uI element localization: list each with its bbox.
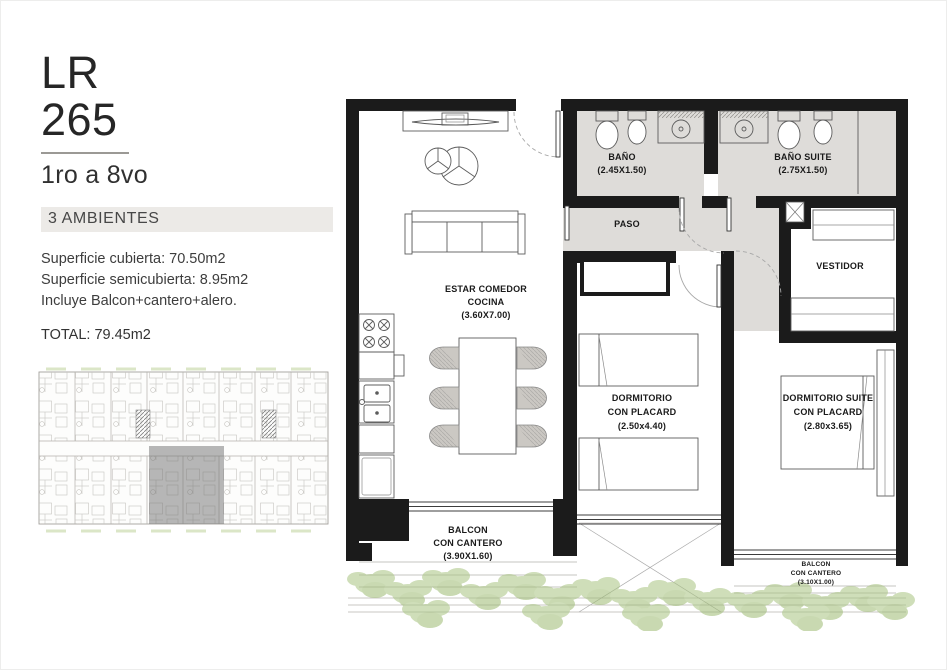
vestidor-label: VESTIDOR — [816, 261, 864, 271]
key-plan — [36, 364, 332, 538]
balcony-plants — [347, 568, 915, 631]
entry-door — [514, 111, 560, 157]
svg-text:(2.80x3.65): (2.80x3.65) — [804, 421, 852, 431]
svg-text:DORMITORIO: DORMITORIO — [612, 393, 672, 403]
spec-includes: Incluye Balcon+cantero+alero. — [41, 291, 333, 312]
bed-2 — [579, 438, 698, 490]
stove — [359, 314, 394, 352]
dining-set — [430, 338, 547, 454]
dormitorio-label: DORMITORIO CON PLACARD (2.50x4.40) — [608, 393, 677, 431]
bano-door — [680, 198, 684, 231]
bidet — [628, 120, 646, 144]
living-furniture — [359, 111, 547, 498]
key-plan-graphic — [39, 369, 328, 531]
spec-semicovered: Superficie semicubierta: 8.95m2 — [41, 270, 333, 291]
svg-text:BALCON: BALCON — [801, 561, 830, 568]
paso-label: PASO — [614, 219, 640, 229]
living-balcony-door — [409, 502, 553, 511]
svg-text:BAÑO: BAÑO — [608, 152, 635, 162]
key-plan-unit-highlight — [149, 446, 224, 524]
svg-text:CON PLACARD: CON PLACARD — [794, 407, 863, 417]
svg-text:COCINA: COCINA — [468, 297, 505, 307]
project-code-line2: 265 — [41, 96, 333, 143]
svg-text:(3.60X7.00): (3.60X7.00) — [461, 310, 510, 320]
svg-text:CON CANTERO: CON CANTERO — [791, 570, 842, 577]
bidet — [814, 120, 832, 144]
svg-text:CON PLACARD: CON PLACARD — [608, 407, 677, 417]
floor-plan: ESTAR COMEDOR COCINA (3.60X7.00) BAÑO (2… — [346, 86, 947, 631]
svg-text:CON CANTERO: CON CANTERO — [433, 538, 502, 548]
ambientes-label: 3 AMBIENTES — [48, 210, 160, 227]
divider-rule — [41, 152, 129, 154]
page-background: LR 265 1ro a 8vo 3 AMBIENTES Superficie … — [0, 0, 947, 670]
dining-table — [459, 338, 516, 454]
living-label: ESTAR COMEDOR COCINA (3.60X7.00) — [445, 284, 527, 320]
dormitorio-suite-label: DORMITORIO SUITE CON PLACARD (2.80x3.65) — [783, 393, 874, 431]
project-code: LR 265 — [41, 49, 333, 143]
shaft — [786, 202, 804, 222]
kitchen-counter — [359, 314, 404, 498]
svg-text:PASO: PASO — [614, 219, 640, 229]
side-tables — [425, 147, 478, 185]
closet — [582, 260, 668, 294]
bed-1 — [579, 334, 698, 386]
balcon-left-label: BALCON CON CANTERO (3.90X1.60) — [433, 525, 502, 561]
svg-text:(2.50x4.40): (2.50x4.40) — [618, 421, 666, 431]
svg-text:ESTAR COMEDOR: ESTAR COMEDOR — [445, 284, 527, 294]
bedroom-door — [679, 265, 721, 307]
svg-text:(3.10X1.00): (3.10X1.00) — [798, 579, 834, 586]
info-panel: LR 265 1ro a 8vo 3 AMBIENTES Superficie … — [41, 49, 333, 538]
floor-range: 1ro a 8vo — [41, 161, 333, 190]
suite-window — [734, 550, 896, 559]
balcon-right-label: BALCON CON CANTERO (3.10X1.00) — [791, 561, 842, 586]
suite-placard — [877, 350, 894, 496]
svg-text:BAÑO SUITE: BAÑO SUITE — [774, 152, 832, 162]
toilet — [778, 121, 800, 149]
paso-door — [565, 206, 569, 240]
sofa — [405, 211, 525, 254]
spec-covered: Superficie cubierta: 70.50m2 — [41, 249, 333, 270]
svg-text:VESTIDOR: VESTIDOR — [816, 261, 864, 271]
svg-text:(2.75X1.50): (2.75X1.50) — [778, 165, 827, 175]
toilet — [596, 121, 618, 149]
svg-text:(2.45X1.50): (2.45X1.50) — [597, 165, 646, 175]
bedroom-furniture — [579, 260, 698, 490]
fridge — [359, 455, 394, 498]
tv-unit — [403, 111, 508, 131]
svg-text:(3.90X1.60): (3.90X1.60) — [443, 551, 492, 561]
svg-text:DORMITORIO SUITE: DORMITORIO SUITE — [783, 393, 874, 403]
total-surface: TOTAL: 79.45m2 — [41, 327, 333, 343]
project-code-line1: LR — [41, 49, 333, 96]
ambientes-bar: 3 AMBIENTES — [41, 207, 333, 232]
svg-text:BALCON: BALCON — [448, 525, 488, 535]
surface-specs: Superficie cubierta: 70.50m2 Superficie … — [41, 249, 333, 312]
